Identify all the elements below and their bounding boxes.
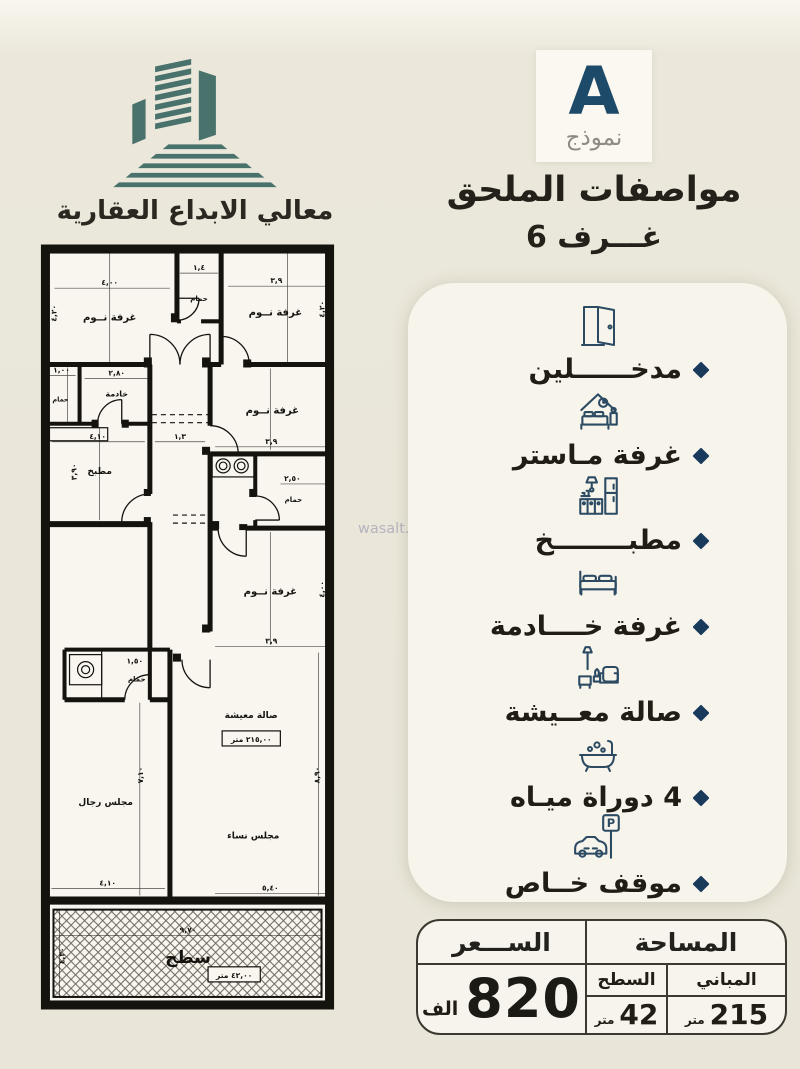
bathtub-icon (408, 727, 787, 777)
feature-label-row: موقف خــاص (408, 869, 787, 899)
dim-bath-lower-w: ١,٥٠ (126, 657, 143, 666)
living-room-icon (408, 642, 787, 692)
dim-bedroom-top-left-h: ٤,٢٠ (49, 305, 58, 322)
dim-maid-w: ٢,٨٠ (108, 369, 125, 378)
diamond-bullet (693, 875, 710, 892)
buildings-area-column: المباني 215 متر (668, 965, 785, 1033)
feature-label-row: غرفة خــــادمة (408, 612, 787, 642)
roof-area-box: ٤٢,٠٠ متر (215, 971, 252, 980)
price-header: الســـعر (418, 921, 585, 965)
feature-item-parking: P موقف خــاص (408, 813, 787, 899)
area-section: المساحة السطح 42 متر المباني 215 متر (585, 921, 785, 1033)
dim-bedroom-mid-right-w: ٣,٩ (265, 437, 277, 446)
feature-item-living-room: صالة معــيشة (408, 642, 787, 728)
feature-label-row: 4 دوراة ميـاه (408, 783, 787, 813)
rooms-count: 6 غـــرف (398, 220, 790, 255)
dim-women-majlis-w: ٥,٤٠ (262, 884, 279, 893)
area-sub-table: السطح 42 متر المباني 215 متر (587, 965, 785, 1033)
dim-bedroom-lower-right-w: ٣,٩ (265, 637, 277, 646)
room-label-bedroom-top-right: غرفة نــوم (249, 307, 302, 318)
room-label-bath-lower: حمام (128, 675, 146, 684)
feature-label: 4 دوراة ميـاه (510, 783, 682, 813)
feature-item-entrances: مدخــــــلين (408, 299, 787, 385)
dim-roof-w: ٩,٧٠ (180, 926, 197, 935)
room-label-bedroom-lower-right: غرفة نــوم (244, 586, 297, 597)
roof-area-value: 42 (619, 1001, 658, 1029)
company-logo: معالي الابداع العقارية (45, 54, 345, 226)
dim-bedroom-top-left-w: ٤,٠٠ (101, 278, 118, 287)
dim-men-majlis-h: ٧,١٠ (136, 767, 145, 784)
master-bedroom-icon (408, 385, 787, 435)
buildings-area-value: 215 (710, 1001, 768, 1029)
building-logo-icon (100, 54, 290, 194)
dim-bedroom-lower-right-h: ٤,٠٠ (318, 581, 327, 598)
room-label-kitchen: مطبخ (87, 467, 112, 477)
dim-bath-mid-w: ٢,٥٠ (284, 474, 301, 483)
feature-item-maid-room: غرفة خــــادمة (408, 556, 787, 642)
diamond-bullet (693, 704, 710, 721)
living-area-box: ٢١٥,٠٠ متر (230, 735, 272, 744)
model-card: A نموذج (536, 50, 652, 162)
price-value-row: 820 الف (418, 965, 585, 1033)
roof-area-unit: متر (595, 1013, 615, 1027)
dim-bath-top-w: ١,٤ (193, 263, 205, 272)
feature-label-row: صالة معــيشة (408, 698, 787, 728)
feature-label: مدخــــــلين (529, 355, 682, 385)
diamond-bullet (693, 447, 710, 464)
diamond-bullet (693, 361, 710, 378)
dim-corridor-w: ١,٣ (174, 432, 186, 441)
feature-item-master-bedroom: غرفة مـاستر (408, 385, 787, 471)
kitchen-icon (408, 470, 787, 520)
roof-area-column: السطح 42 متر (587, 965, 668, 1033)
features-card: مدخــــــلين غرفة مـاستر (408, 283, 787, 902)
dim-men-majlis-w: ٤,١٠ (99, 879, 116, 888)
dim-kitchen-h: ٣,٩٠ (70, 464, 79, 481)
room-label-men-majlis: مجلس رجال (78, 798, 133, 808)
feature-label: موقف خــاص (505, 869, 682, 899)
room-label-bedroom-top-left: غرفة نــوم (83, 312, 136, 323)
dim-bedroom-top-right-w: ٣,٩ (270, 276, 282, 285)
feature-label-row: مطبــــــــخ (408, 526, 787, 556)
room-label-bath-top: حمام (190, 294, 208, 303)
buildings-area-unit: متر (685, 1013, 705, 1027)
feature-item-kitchen: مطبــــــــخ (408, 470, 787, 556)
dim-right-side-h: ٨,٩٠ (313, 767, 322, 784)
diamond-bullet (693, 533, 710, 550)
parking-sign-letter: P (606, 816, 614, 830)
dim-bedroom-top-right-h: ٤,٢٠ (318, 301, 327, 318)
price-section: الســـعر 820 الف (418, 921, 585, 1033)
maid-room-bed-icon (408, 556, 787, 606)
room-label-bedroom-mid-right: غرفة نــوم (246, 406, 299, 417)
model-word: نموذج (566, 125, 623, 151)
summary-card: الســـعر 820 الف المساحة السطح 42 متر ال… (416, 919, 787, 1035)
page-title: مواصفات الملحق (398, 170, 790, 210)
price-unit: الف (422, 998, 458, 1020)
roof-area-value-row: 42 متر (587, 997, 666, 1033)
room-label-bath-maid: حمام (52, 396, 69, 404)
company-name: معالي الابداع العقارية (45, 196, 345, 226)
dim-roof-h: ٤,٣٠ (58, 947, 67, 964)
room-label-living: صالة معيشة (225, 711, 278, 721)
roof-area-label: السطح (587, 965, 666, 997)
dim-kitchen-w: ٤,١٠ (89, 432, 106, 441)
feature-label: مطبــــــــخ (535, 526, 682, 556)
floor-plan-drawing: غرفة نــوم حمام غرفة نــوم خادمة حمام مط… (38, 243, 337, 1011)
price-value: 820 (465, 972, 581, 1026)
buildings-area-label: المباني (668, 965, 785, 997)
area-header: المساحة (587, 921, 785, 965)
feature-label-row: مدخــــــلين (408, 355, 787, 385)
buildings-area-value-row: 215 متر (668, 997, 785, 1033)
door-icon (408, 299, 787, 349)
specs-header: مواصفات الملحق 6 غـــرف (398, 170, 790, 255)
model-letter: A (568, 61, 619, 124)
parking-icon: P (408, 813, 787, 863)
room-label-maid: خادمة (105, 390, 128, 399)
feature-label-row: غرفة مـاستر (408, 441, 787, 471)
feature-label: صالة معــيشة (505, 698, 682, 728)
floor-plan: غرفة نــوم حمام غرفة نــوم خادمة حمام مط… (38, 243, 337, 1011)
diamond-bullet (693, 790, 710, 807)
feature-label: غرفة مـاستر (513, 441, 682, 471)
room-label-women-majlis: مجلس نساء (227, 831, 279, 841)
diamond-bullet (693, 618, 710, 635)
feature-label: غرفة خــــادمة (490, 612, 682, 642)
room-label-bath-mid: حمام (285, 495, 303, 504)
feature-item-bathrooms: 4 دوراة ميـاه (408, 727, 787, 813)
dim-bath-maid-w: ١,٠٠ (53, 366, 70, 375)
room-label-roof: سطح (165, 948, 211, 968)
